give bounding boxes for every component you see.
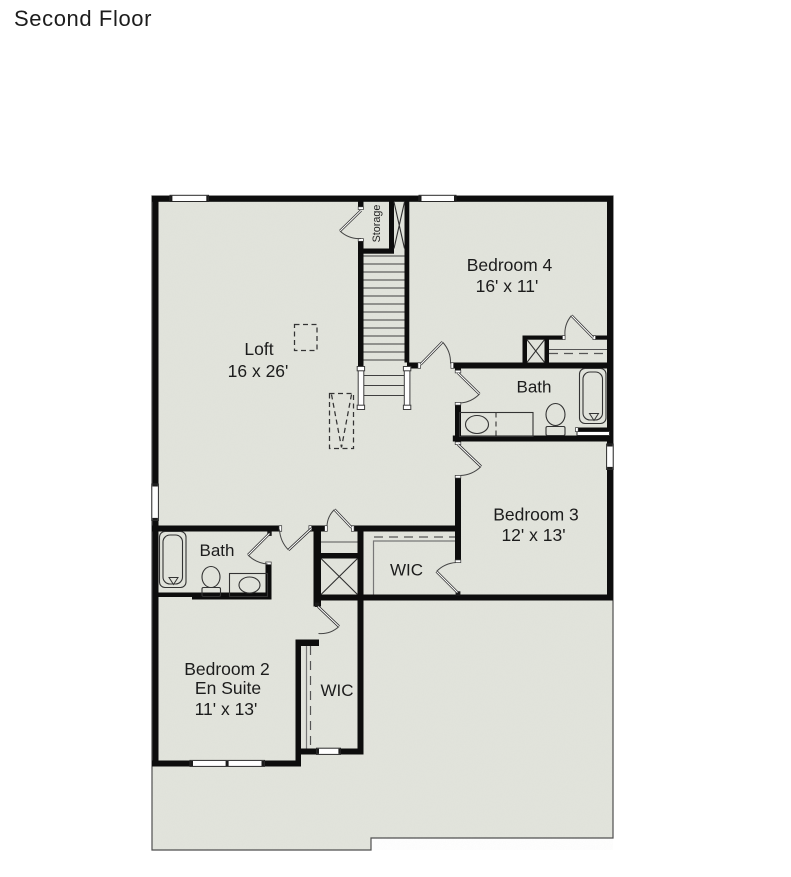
svg-text:WIC: WIC [390, 561, 423, 580]
svg-text:Second Floor: Second Floor [14, 6, 152, 31]
svg-text:Bedroom 4: Bedroom 4 [467, 255, 553, 275]
svg-text:Bedroom 2: Bedroom 2 [184, 659, 270, 679]
svg-text:WIC: WIC [320, 681, 353, 700]
svg-text:16' x 11': 16' x 11' [476, 276, 539, 296]
svg-text:Bath: Bath [517, 378, 552, 397]
svg-text:16 x 26': 16 x 26' [228, 361, 289, 381]
svg-text:Bath: Bath [200, 541, 235, 560]
svg-text:12' x 13': 12' x 13' [501, 525, 565, 545]
svg-text:11' x 13': 11' x 13' [195, 699, 258, 719]
svg-text:Loft: Loft [244, 339, 273, 359]
svg-text:Bedroom 3: Bedroom 3 [493, 505, 579, 525]
svg-text:Storage: Storage [371, 205, 383, 243]
svg-text:En Suite: En Suite [195, 678, 261, 698]
